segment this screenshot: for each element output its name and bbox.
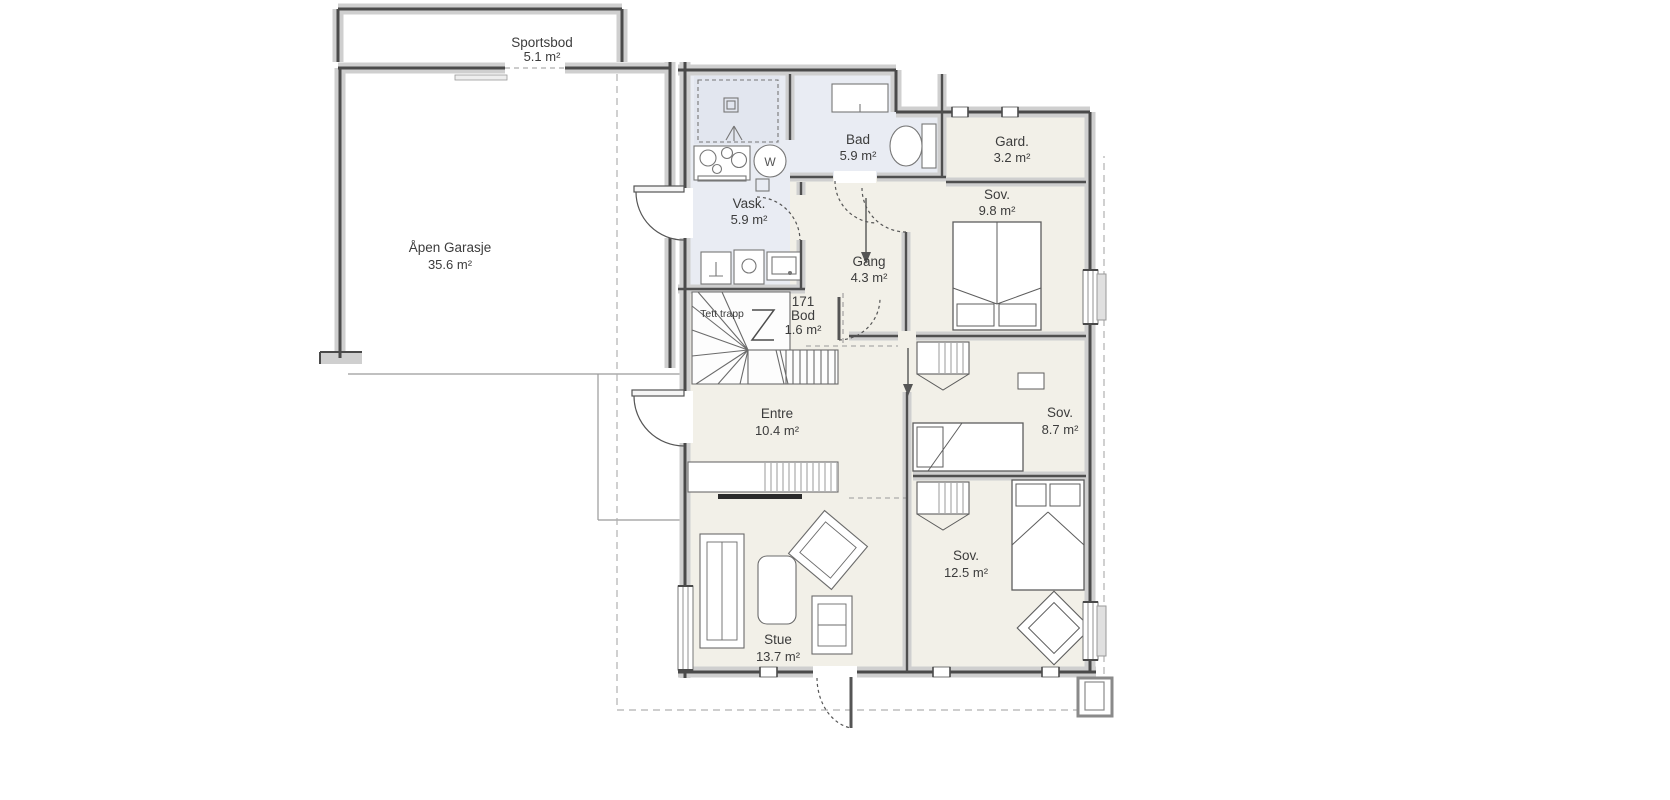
label-sov-nord-area: 9.8 m²: [979, 203, 1017, 218]
label-garasje: Åpen Garasje: [409, 240, 492, 255]
window-sill: [1097, 606, 1106, 656]
garage-door-leaf: [634, 186, 684, 192]
label-sov-midt: Sov.: [1047, 405, 1073, 420]
label-sov-sor: Sov.: [953, 548, 979, 563]
label-bod: Bod: [791, 308, 815, 323]
label-entre-area: 10.4 m²: [755, 423, 800, 438]
pillow: [1016, 484, 1046, 506]
label-sportsbod-area: 5.1 m²: [524, 49, 562, 64]
label-bod-number: 171: [792, 294, 815, 309]
water-heater-label: W: [764, 155, 776, 169]
pillow: [917, 427, 943, 467]
label-sov-midt-area: 8.7 m²: [1042, 422, 1080, 437]
floorplan-drawing: W: [0, 0, 1670, 800]
label-bod-area: 1.6 m²: [785, 322, 823, 337]
opening-garage-door: [662, 188, 693, 238]
label-tett-trapp: Tett trapp: [700, 308, 744, 320]
label-bad-area: 5.9 m²: [840, 148, 878, 163]
window-sov-nord-east: [1083, 270, 1098, 324]
south-door-arc: [817, 678, 851, 728]
nightstand: [1018, 373, 1044, 389]
label-gang: Gang: [852, 254, 885, 269]
label-vask: Vask.: [733, 196, 766, 211]
label-vask-area: 5.9 m²: [731, 212, 769, 227]
pillow: [999, 304, 1036, 326]
label-sov-nord: Sov.: [984, 187, 1010, 202]
entrance-door-arc: [634, 396, 684, 446]
coffee-table: [758, 556, 796, 624]
opening-bad-door: [834, 171, 876, 183]
pillow: [1050, 484, 1080, 506]
label-gard: Gard.: [995, 134, 1029, 149]
label-gang-area: 4.3 m²: [851, 270, 889, 285]
sliding-door-leaf: [455, 75, 507, 80]
toilet-icon: [890, 126, 922, 166]
window-stue-west: [678, 586, 693, 670]
pillow: [957, 304, 994, 326]
toilet-tank: [922, 124, 936, 168]
entrance-door-leaf: [632, 390, 684, 396]
threshold-bar: [718, 494, 802, 499]
label-entre: Entre: [761, 406, 793, 421]
label-stue: Stue: [764, 632, 792, 647]
floorplan-canvas: W: [0, 0, 1670, 800]
window-sill: [1097, 274, 1106, 320]
appliance-washer: [734, 250, 764, 284]
label-garasje-area: 35.6 m²: [428, 257, 473, 272]
label-gard-area: 3.2 m²: [994, 150, 1032, 165]
opening-south-door: [813, 666, 857, 678]
opening-entrance-door: [678, 391, 693, 443]
window-sov-sor-east: [1083, 602, 1098, 660]
label-sov-sor-area: 12.5 m²: [944, 565, 989, 580]
label-bad: Bad: [846, 132, 870, 147]
label-stue-area: 13.7 m²: [756, 649, 801, 664]
corner-window-well: [1078, 678, 1112, 716]
label-sportsbod: Sportsbod: [511, 35, 573, 50]
